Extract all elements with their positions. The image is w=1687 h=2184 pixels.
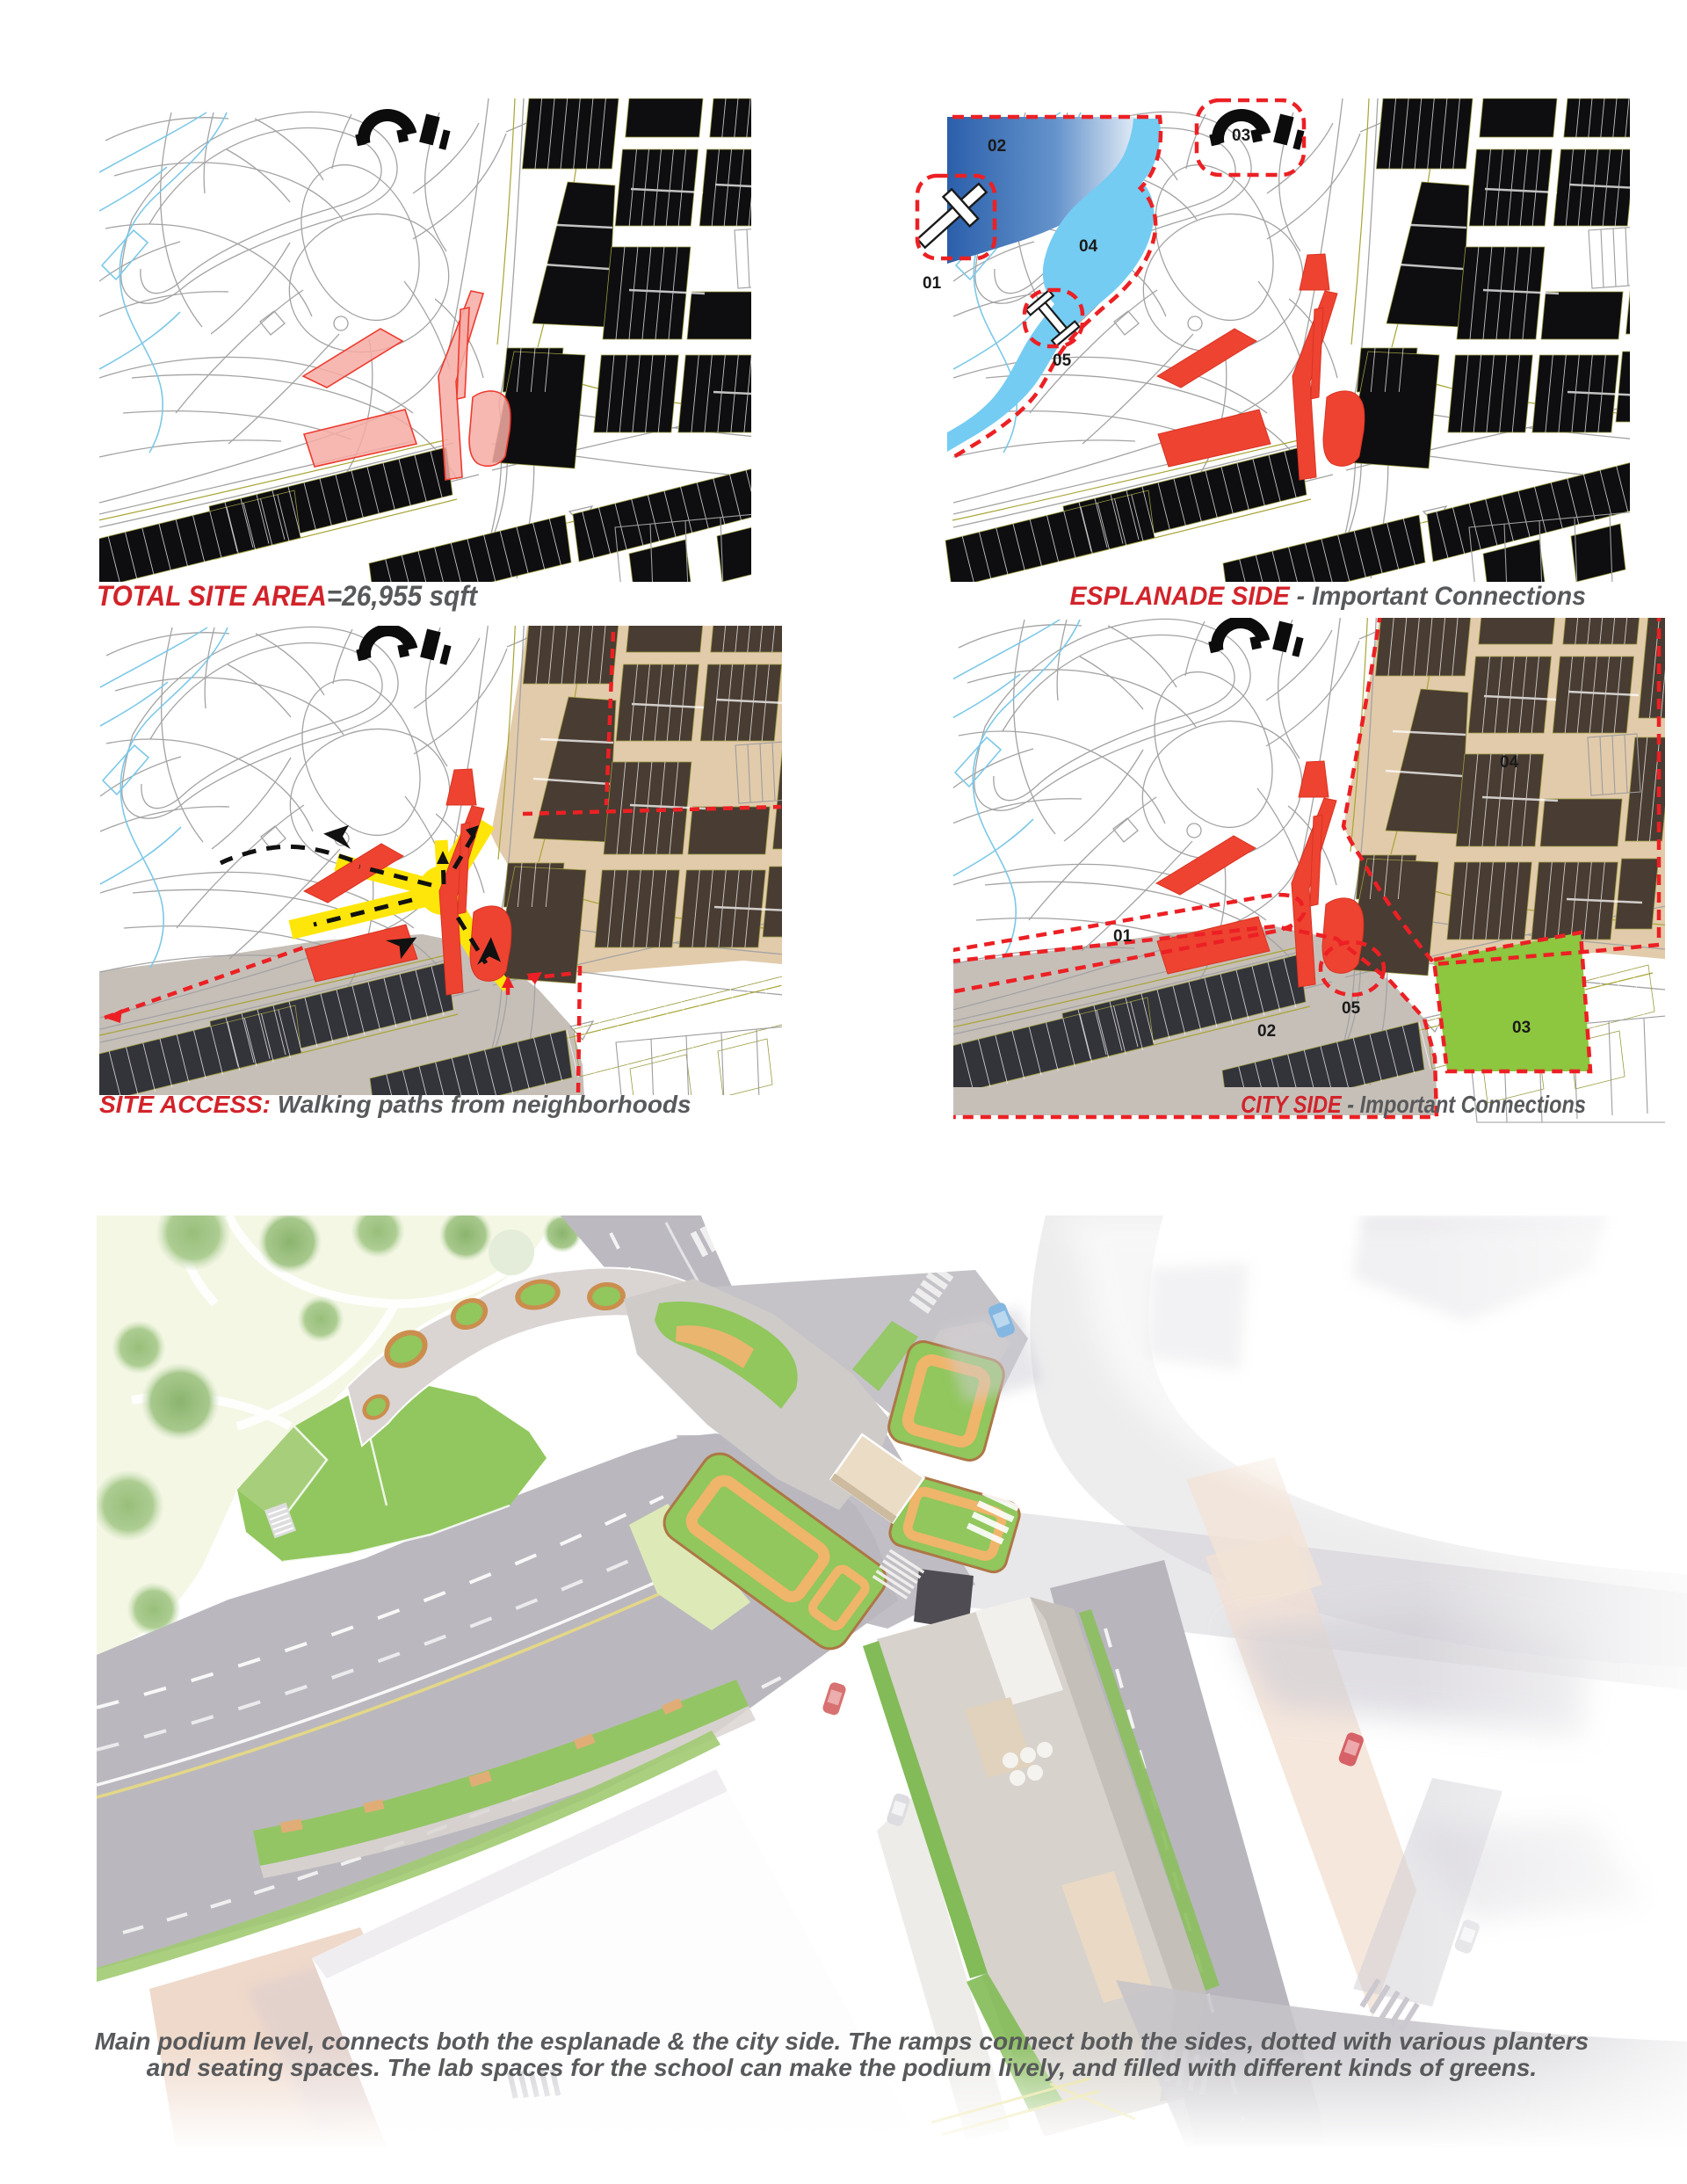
svg-text:05: 05 [1342,999,1361,1018]
svg-text:03: 03 [1232,127,1250,145]
svg-text:02: 02 [988,137,1006,156]
svg-text:04: 04 [1500,753,1519,772]
svg-text:05: 05 [1053,352,1072,370]
svg-text:01: 01 [923,274,942,293]
svg-text:02: 02 [1257,1022,1276,1041]
svg-text:04: 04 [1079,237,1098,256]
svg-text:03: 03 [1512,1019,1531,1037]
svg-text:01: 01 [1113,927,1133,946]
